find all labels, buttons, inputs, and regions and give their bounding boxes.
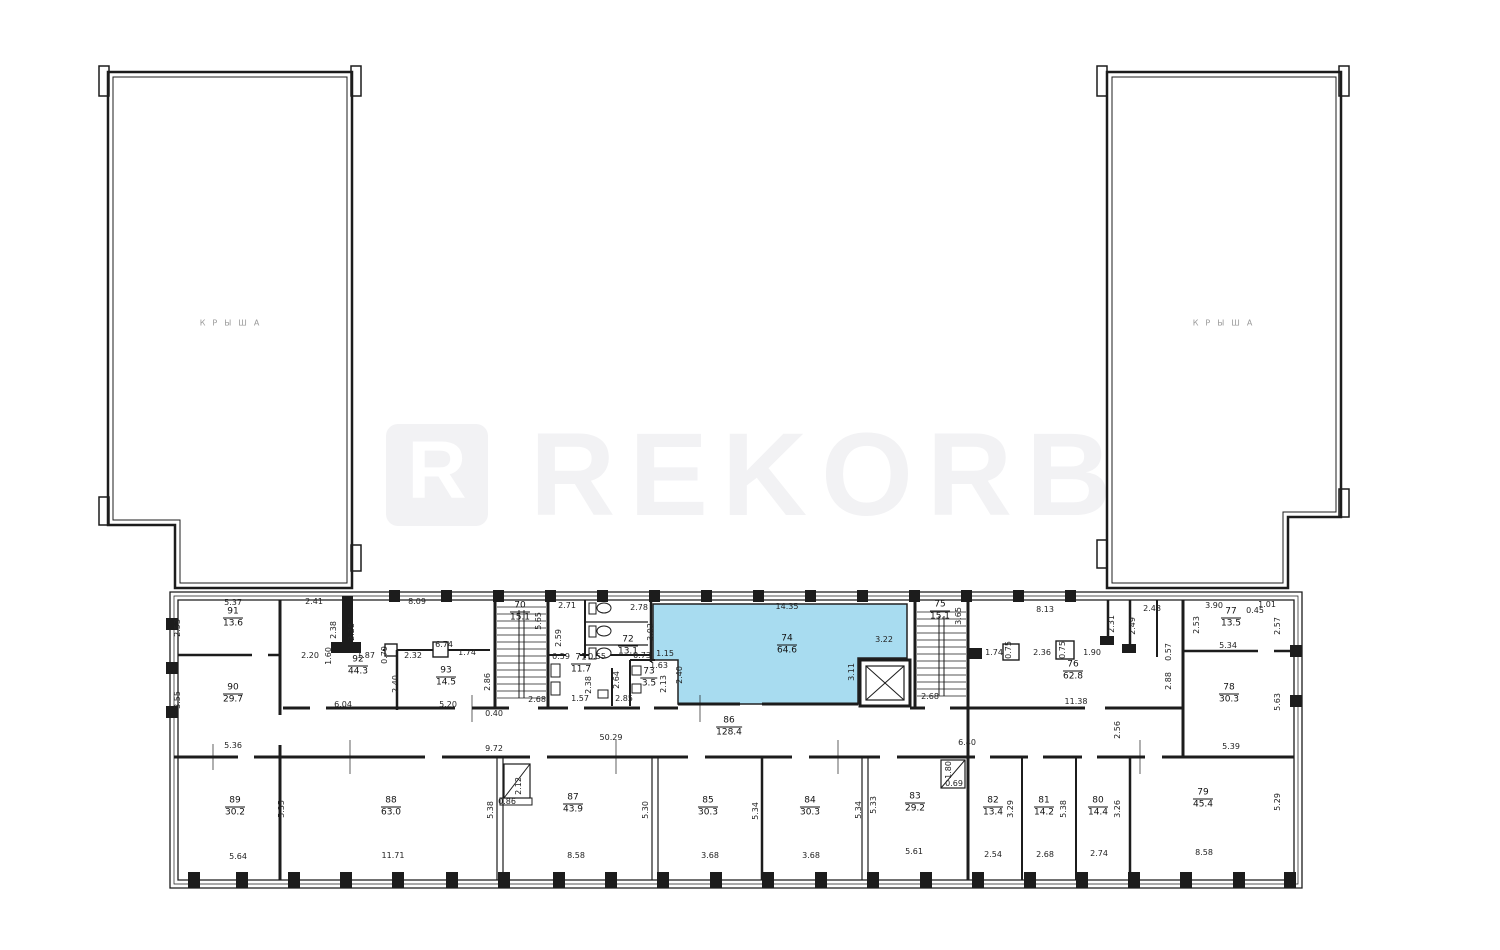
room-label: 8743.9 bbox=[563, 794, 583, 815]
dimension-label: 5.38 bbox=[487, 801, 495, 819]
dimension-label: 8.09 bbox=[408, 598, 426, 606]
room-label: 8213.4 bbox=[983, 797, 1003, 818]
room-label: 8530.3 bbox=[698, 797, 718, 818]
dimension-label: 1.01 bbox=[1258, 601, 1276, 609]
dimension-label: 2.38 bbox=[585, 676, 593, 694]
dimension-label: 0.69 bbox=[945, 780, 963, 788]
dimension-label: 2.41 bbox=[305, 598, 323, 606]
dimension-label: 0.40 bbox=[485, 710, 503, 718]
dimension-label: 1.60 bbox=[325, 647, 333, 665]
room-label: 8430.3 bbox=[800, 797, 820, 818]
dimension-label: 2.57 bbox=[1274, 617, 1282, 635]
dimension-label: 1.74 bbox=[985, 649, 1003, 657]
dimension-label: 5.34 bbox=[1219, 642, 1237, 650]
dimension-label: 2.68 bbox=[1036, 851, 1054, 859]
dimension-label: 1.63 bbox=[650, 662, 668, 670]
dimension-label: 2.88 bbox=[1165, 672, 1173, 690]
dimension-label: 1.74 bbox=[458, 649, 476, 657]
dimension-label: 5.33 bbox=[870, 796, 878, 814]
dimension-label: 2.53 bbox=[1193, 616, 1201, 634]
dimension-label: 11.38 bbox=[1065, 698, 1088, 706]
dimension-label: 2.85 bbox=[615, 695, 633, 703]
dimension-label: 0.75 bbox=[1005, 641, 1013, 659]
dimension-label: 2.12 bbox=[515, 777, 523, 795]
dimension-label: 5.61 bbox=[905, 848, 923, 856]
dimension-label: 2.49 bbox=[1129, 617, 1137, 635]
dimension-label: 6.74 bbox=[435, 641, 453, 649]
dimension-label: 1.15 bbox=[656, 650, 674, 658]
dimension-label: 5.29 bbox=[1274, 793, 1282, 811]
floor-plan-page: R REKORB КРЫША КРЫША bbox=[0, 0, 1500, 950]
dimension-label: 11.71 bbox=[382, 852, 405, 860]
dimension-label: 2.40 bbox=[392, 675, 400, 693]
room-label: 7830.3 bbox=[1219, 684, 1239, 705]
dimension-label: 5.37 bbox=[224, 599, 242, 607]
dimension-label: 0.75 bbox=[1059, 641, 1067, 659]
room-label: 8014.4 bbox=[1088, 797, 1108, 818]
dimension-label: 5.65 bbox=[535, 612, 543, 630]
labels-layer: 9113.69029.79244.39314.57015.17111.77213… bbox=[0, 0, 1500, 950]
dimension-label: 8.58 bbox=[567, 852, 585, 860]
dimension-label: 6.04 bbox=[334, 701, 352, 709]
room-label: 7713.5 bbox=[1221, 608, 1241, 629]
dimension-label: 5.36 bbox=[224, 742, 242, 750]
room-label: 9029.7 bbox=[223, 684, 243, 705]
dimension-label: 5.34 bbox=[855, 801, 863, 819]
dimension-label: 3.11 bbox=[848, 663, 856, 681]
room-label: 7515.1 bbox=[930, 601, 950, 622]
dimension-label: 2.48 bbox=[1143, 605, 1161, 613]
dimension-label: 3.65 bbox=[955, 607, 963, 625]
dimension-label: 2.86 bbox=[484, 673, 492, 691]
dimension-label: 2.54 bbox=[984, 851, 1002, 859]
dimension-label: 2.20 bbox=[301, 652, 319, 660]
dimension-label: 3.90 bbox=[1205, 602, 1223, 610]
dimension-label: 14.35 bbox=[776, 603, 799, 611]
dimension-label: 3.02 bbox=[647, 623, 655, 641]
dimension-label: 2.32 bbox=[404, 652, 422, 660]
dimension-label: 2.36 bbox=[1033, 649, 1051, 657]
room-label: 8863.0 bbox=[381, 797, 401, 818]
dimension-label: 2.40 bbox=[676, 666, 684, 684]
dimension-label: 1.90 bbox=[1083, 649, 1101, 657]
dimension-label: 3.68 bbox=[802, 852, 820, 860]
room-label: 9314.5 bbox=[436, 667, 456, 688]
dimension-label: 2.13 bbox=[660, 675, 668, 693]
dimension-label: 5.20 bbox=[439, 701, 457, 709]
room-label: 8329.2 bbox=[905, 793, 925, 814]
dimension-label: 5.38 bbox=[1060, 800, 1068, 818]
dimension-label: 50.29 bbox=[600, 734, 623, 742]
dimension-label: 3.22 bbox=[875, 636, 893, 644]
dimension-label: 3.26 bbox=[1114, 800, 1122, 818]
room-label: 733.5 bbox=[640, 668, 657, 689]
dimension-label: 0.55 bbox=[588, 653, 606, 661]
dimension-label: 0.79 bbox=[381, 646, 389, 664]
dimension-label: 2.71 bbox=[558, 602, 576, 610]
dimension-label: 3.68 bbox=[701, 852, 719, 860]
room-label: 9113.6 bbox=[223, 608, 243, 629]
dimension-label: 2.56 bbox=[1114, 721, 1122, 739]
dimension-label: 2.78 bbox=[630, 604, 648, 612]
dimension-label: 2.68 bbox=[921, 693, 939, 701]
dimension-label: 2.64 bbox=[613, 671, 621, 689]
room-label: 7662.8 bbox=[1063, 661, 1083, 682]
room-label: 7945.4 bbox=[1193, 789, 1213, 810]
dimension-label: 3.29 bbox=[1007, 800, 1015, 818]
dimension-label: 6.40 bbox=[958, 739, 976, 747]
room-label: 7464.6 bbox=[777, 635, 797, 656]
dimension-label: 1.80 bbox=[945, 761, 953, 779]
dimension-label: 1.87 bbox=[357, 652, 375, 660]
dimension-label: 2.74 bbox=[1090, 850, 1108, 858]
dimension-label: 5.39 bbox=[1222, 743, 1240, 751]
dimension-label: 5.63 bbox=[1274, 693, 1282, 711]
dimension-label: 5.35 bbox=[278, 800, 286, 818]
room-label: 7015.1 bbox=[510, 602, 530, 623]
dimension-label: 3.55 bbox=[174, 691, 182, 709]
dimension-label: 0.57 bbox=[1165, 643, 1173, 661]
dimension-label: 5.30 bbox=[642, 801, 650, 819]
dimension-label: 2.53 bbox=[174, 619, 182, 637]
dimension-label: 0.73 bbox=[633, 652, 651, 660]
dimension-label: 1.57 bbox=[571, 695, 589, 703]
dimension-label: 2.28 bbox=[348, 623, 356, 641]
dimension-label: 5.34 bbox=[752, 802, 760, 820]
dimension-label: 0.59 bbox=[552, 653, 570, 661]
dimension-label: 2.38 bbox=[330, 621, 338, 639]
room-label: 86128.4 bbox=[716, 717, 742, 738]
room-label: 8930.2 bbox=[225, 797, 245, 818]
room-label: 8114.2 bbox=[1034, 797, 1054, 818]
dimension-label: 8.13 bbox=[1036, 606, 1054, 614]
dimension-label: 2.31 bbox=[1108, 615, 1116, 633]
dimension-label: 8.58 bbox=[1195, 849, 1213, 857]
dimension-label: 9.72 bbox=[485, 745, 503, 753]
dimension-label: 2.68 bbox=[528, 696, 546, 704]
dimension-label: 5.64 bbox=[229, 853, 247, 861]
dimension-label: 0.86 bbox=[498, 798, 516, 806]
dimension-label: 2.59 bbox=[555, 629, 563, 647]
